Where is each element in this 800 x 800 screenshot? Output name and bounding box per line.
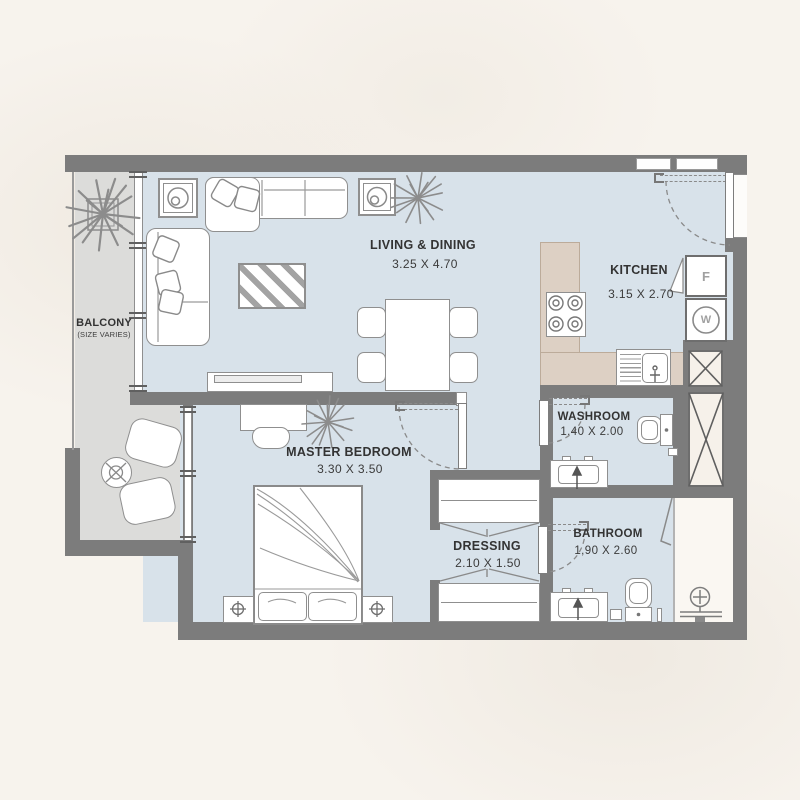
bathroom-basin <box>558 598 599 618</box>
label-bedroom-name: MASTER BEDROOM <box>286 445 412 459</box>
label-dressing-dims: 2.10 X 1.50 <box>455 556 521 570</box>
dining-chair <box>449 352 478 383</box>
label-bathroom-dims: 1,90 X 2.60 <box>574 545 637 557</box>
dining-chair <box>357 307 386 338</box>
balcony-table <box>101 457 132 488</box>
window-tick <box>129 385 147 392</box>
washroom-door-stop <box>580 395 590 405</box>
shaft-small <box>688 350 723 387</box>
entry-door-leaf <box>725 172 734 239</box>
nightstand-right <box>362 596 393 623</box>
bathroom-door-leaf <box>538 526 548 574</box>
bathroom-vanity-handle <box>562 588 571 593</box>
tv-screen <box>214 375 302 383</box>
bedroom-door-stop <box>395 401 405 411</box>
wall-niche <box>636 158 671 170</box>
washroom-vanity-handle <box>584 456 593 461</box>
wall-entry-stub <box>725 238 734 252</box>
bedroom-door-leaf <box>458 403 467 469</box>
bed-pillow-right <box>308 592 357 621</box>
label-kitchen-name: KITCHEN <box>610 263 668 277</box>
bathroom-vanity-handle <box>584 588 593 593</box>
entry-door-gap <box>733 174 747 238</box>
window-living <box>134 172 143 392</box>
sofa-side <box>146 228 210 346</box>
label-balcony-name: BALCONY <box>76 317 132 329</box>
label-living-dims: 3.25 X 4.70 <box>392 257 458 271</box>
washroom-paper-holder <box>668 448 678 456</box>
washroom-toilet-bowl-inner <box>641 420 658 440</box>
dining-table <box>385 299 450 391</box>
rug <box>238 263 306 309</box>
window-tick <box>180 536 196 543</box>
floor-plan: F W <box>0 0 800 800</box>
window-tick <box>180 470 196 477</box>
stove <box>546 292 586 337</box>
window-tick <box>129 242 147 249</box>
washroom-toilet-tank <box>660 414 673 446</box>
label-washroom-name: WASHROOM <box>558 411 631 423</box>
wardrobe-top-shelf <box>441 479 537 501</box>
speaker-box-left-inner <box>163 183 193 213</box>
sink-drainboard <box>620 354 641 382</box>
wardrobe-bottom-shelf <box>441 583 537 603</box>
label-balcony-note: (SIZE VARIES) <box>77 330 130 339</box>
entry-door-stop <box>654 173 664 183</box>
sink-basin <box>642 353 668 383</box>
label-kitchen-dims: 3.15 X 2.70 <box>608 287 674 301</box>
desk-chair <box>252 427 290 449</box>
shaft-large <box>688 392 724 487</box>
nightstand-left <box>223 596 254 623</box>
bed-pillow-left <box>258 592 307 621</box>
wall-balcony-south <box>65 540 193 556</box>
dining-chair <box>357 352 386 383</box>
bathroom-small-stool <box>610 609 622 620</box>
sofa-chaise <box>205 177 260 232</box>
label-bathroom-name: BATHROOM <box>573 528 642 540</box>
fridge-label: F <box>687 257 725 295</box>
window-tick <box>129 171 147 178</box>
entry-door-closed <box>660 175 726 182</box>
bathroom-toilet-tank <box>625 607 652 622</box>
shower-boundary <box>673 498 675 622</box>
floor-plan-page: { "colors": { "background": "#f7f3ed", "… <box>0 0 800 800</box>
shower-floor <box>673 498 733 622</box>
dining-chair <box>449 307 478 338</box>
label-bedroom-dims: 3.30 X 3.50 <box>317 462 383 476</box>
speaker-box-right-inner <box>363 183 391 211</box>
washing-machine: W <box>685 298 727 342</box>
label-living-name: LIVING & DINING <box>370 238 476 252</box>
wall-niche <box>676 158 718 170</box>
bedroom-door-closed <box>399 403 458 410</box>
washroom-vanity-handle <box>562 456 571 461</box>
washroom-door-leaf <box>539 400 549 446</box>
label-dressing-name: DRESSING <box>453 539 521 553</box>
washroom-basin <box>558 465 599 484</box>
fridge: F <box>685 255 727 297</box>
washing-machine-label: W <box>687 300 725 340</box>
bathroom-toilet-bowl-inner <box>629 582 648 604</box>
label-washroom-dims: 1.40 X 2.00 <box>560 426 623 438</box>
balcony-railing <box>72 172 74 450</box>
bathroom-brush-holder <box>657 608 662 622</box>
window-tick <box>180 406 196 413</box>
